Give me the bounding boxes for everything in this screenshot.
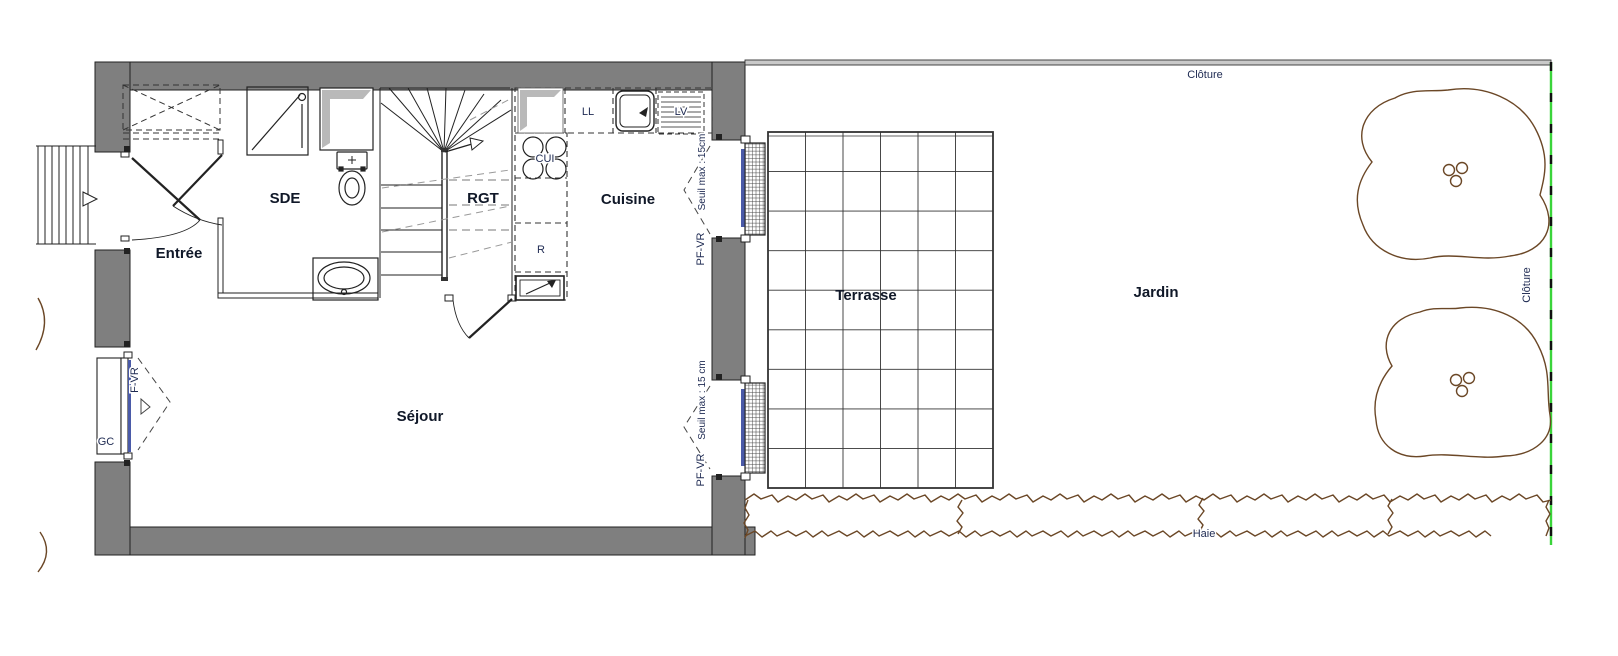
room-label-sejour: Séjour <box>397 408 444 425</box>
tree-top <box>1357 89 1549 260</box>
appliance-label-ll: LL <box>582 106 594 118</box>
room-label-cuisine: Cuisine <box>601 191 655 208</box>
entrance-door <box>121 152 200 241</box>
stair-up-arrow-icon <box>470 138 483 150</box>
wall-end-ticks <box>124 134 722 480</box>
shower-cabinet <box>247 87 308 155</box>
sde-partitions <box>173 140 378 298</box>
stair-door <box>445 295 516 338</box>
labels: SDE Entrée RGT Cuisine Séjour Terrasse J… <box>98 69 1533 540</box>
appliance-label-lv: LV <box>675 106 688 118</box>
room-label-rgt: RGT <box>467 190 499 207</box>
entry-closet <box>123 85 220 139</box>
floor-plan: SDE Entrée RGT Cuisine Séjour Terrasse J… <box>0 0 1618 656</box>
tree-bottom <box>1375 307 1551 457</box>
faucet-icon <box>639 107 648 117</box>
exterior-stairs <box>36 146 97 244</box>
room-label-entree: Entrée <box>156 245 203 262</box>
kitchen-sink <box>616 91 654 131</box>
area-label-jardin: Jardin <box>1133 284 1178 301</box>
hedge-label: Haie <box>1193 528 1216 540</box>
electrical-panel <box>516 276 564 300</box>
shower-tray <box>320 88 373 150</box>
threshold-label-top: Seuil max : 15cm <box>697 134 708 211</box>
floor-plan-drawing: SDE Entrée RGT Cuisine Séjour Terrasse J… <box>0 0 1618 656</box>
hedge <box>744 494 1551 538</box>
opening-label-pf-vr-top: PF-VR <box>695 232 707 265</box>
appliance-label-r: R <box>537 244 545 256</box>
kitchen-worktop-corner <box>518 88 563 133</box>
appliance-label-cui: CUI <box>536 153 555 165</box>
threshold-label-bottom: Seuil max : 15 cm <box>697 360 708 439</box>
opening-label-gc: GC <box>98 436 115 448</box>
tree-edge-fragments <box>36 298 47 572</box>
toilet <box>337 152 367 205</box>
fence-top <box>745 60 1551 65</box>
area-label-terrasse: Terrasse <box>835 287 896 304</box>
opening-label-f-vr: F-VR <box>129 367 141 393</box>
window-swing-triangle-icon <box>141 399 150 414</box>
fence-label-top: Clôture <box>1187 69 1222 81</box>
room-label-sde: SDE <box>270 190 301 207</box>
stairs-direction-arrow-icon <box>83 192 97 206</box>
terrace <box>768 132 993 488</box>
fence-label-right: Clôture <box>1521 267 1533 302</box>
opening-label-pf-vr-bottom: PF-VR <box>695 453 707 486</box>
building-walls <box>95 62 755 555</box>
